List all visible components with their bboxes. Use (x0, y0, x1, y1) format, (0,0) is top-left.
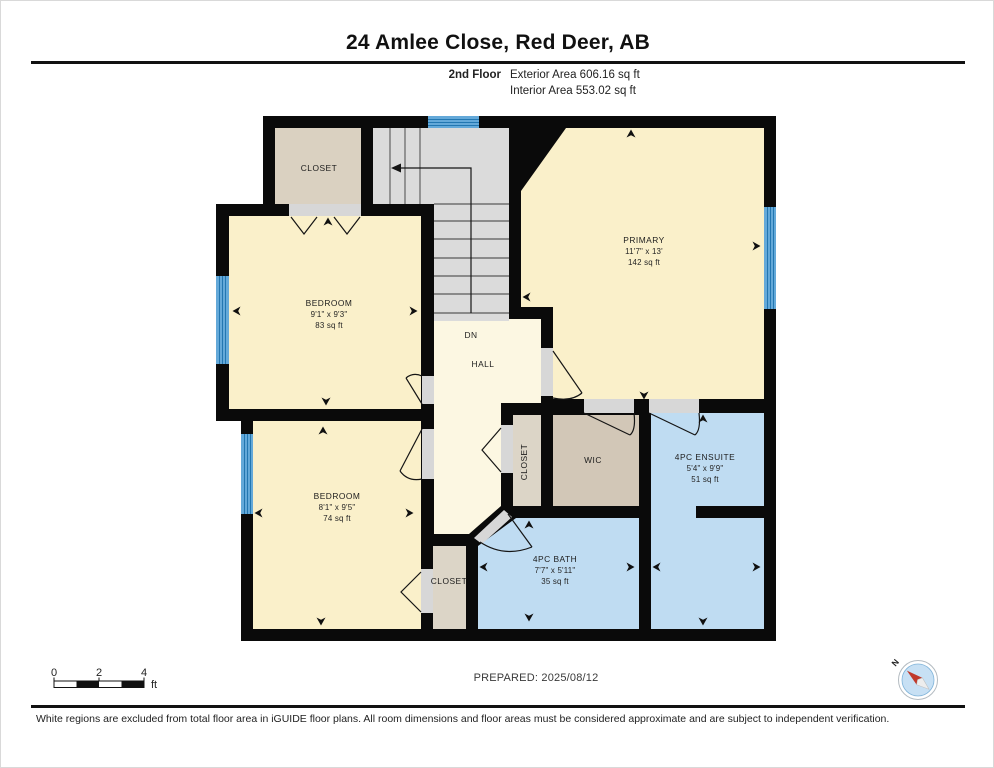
scale-tick-4: 4 (141, 667, 147, 679)
room-fills (229, 128, 764, 629)
room-label-ensuite: 4PC ENSUITE (675, 452, 735, 462)
room-ensuite (651, 413, 764, 629)
scale-unit-label: ft (151, 679, 157, 691)
room-label-bedroom-upper: BEDROOM (306, 298, 353, 308)
room-label-wic: WIC (584, 455, 602, 465)
room-label-primary: 142 sq ft (628, 258, 661, 267)
exterior-area-label: Exterior Area 606.16 sq ft (510, 69, 640, 81)
prepared-date-label: PREPARED: 2025/08/12 (431, 672, 641, 684)
room-label-bath: 7'7" x 5'11" (535, 566, 576, 575)
room-label-primary: 11'7" x 13' (625, 247, 663, 256)
compass-icon: N (890, 652, 944, 706)
room-label-closet-lower: CLOSET (431, 576, 468, 586)
room-label-ensuite: 5'4" x 9'9" (687, 464, 724, 473)
scale-bar: 0 2 4 ft (41, 656, 211, 696)
compass-north-label: N (890, 657, 901, 668)
floorplan-page: { "header": { "title": "24 Amlee Close, … (0, 0, 994, 768)
room-label-bedroom-lower: 8'1" x 9'5" (319, 503, 356, 512)
floor-label: 2nd Floor (301, 69, 501, 81)
room-label-bedroom-upper: 9'1" x 9'3" (311, 310, 348, 319)
room-label-bath: 35 sq ft (541, 577, 569, 586)
footer-divider (31, 705, 965, 708)
scale-tick-2: 2 (96, 667, 102, 679)
scale-tick-0: 0 (51, 667, 57, 679)
room-label-primary: PRIMARY (623, 235, 665, 245)
ensuite-wall-stub (696, 506, 764, 518)
room-label-ensuite: 51 sq ft (691, 475, 719, 484)
room-label-bath: 4PC BATH (533, 554, 577, 564)
floorplan-drawing: CLOSETBEDROOM9'1" x 9'3"83 sq ftPRIMARY1… (206, 106, 786, 651)
room-label-hall: HALL (472, 359, 495, 369)
room-label-closet-top-left: CLOSET (301, 163, 338, 173)
room-label-closet-hall: CLOSET (519, 444, 529, 481)
interior-area-label: Interior Area 553.02 sq ft (510, 85, 636, 97)
room-bedroom-lower (253, 421, 421, 629)
room-label-bedroom-upper: 83 sq ft (315, 321, 343, 330)
header-divider (31, 61, 965, 64)
room-label-bedroom-lower: BEDROOM (314, 491, 361, 501)
room-label-stairs-direction: DN (464, 330, 477, 340)
room-closet-lower (433, 546, 466, 629)
room-label-bedroom-lower: 74 sq ft (323, 514, 351, 523)
page-title: 24 Amlee Close, Red Deer, AB (1, 31, 994, 55)
disclaimer-text: White regions are excluded from total fl… (36, 713, 966, 725)
